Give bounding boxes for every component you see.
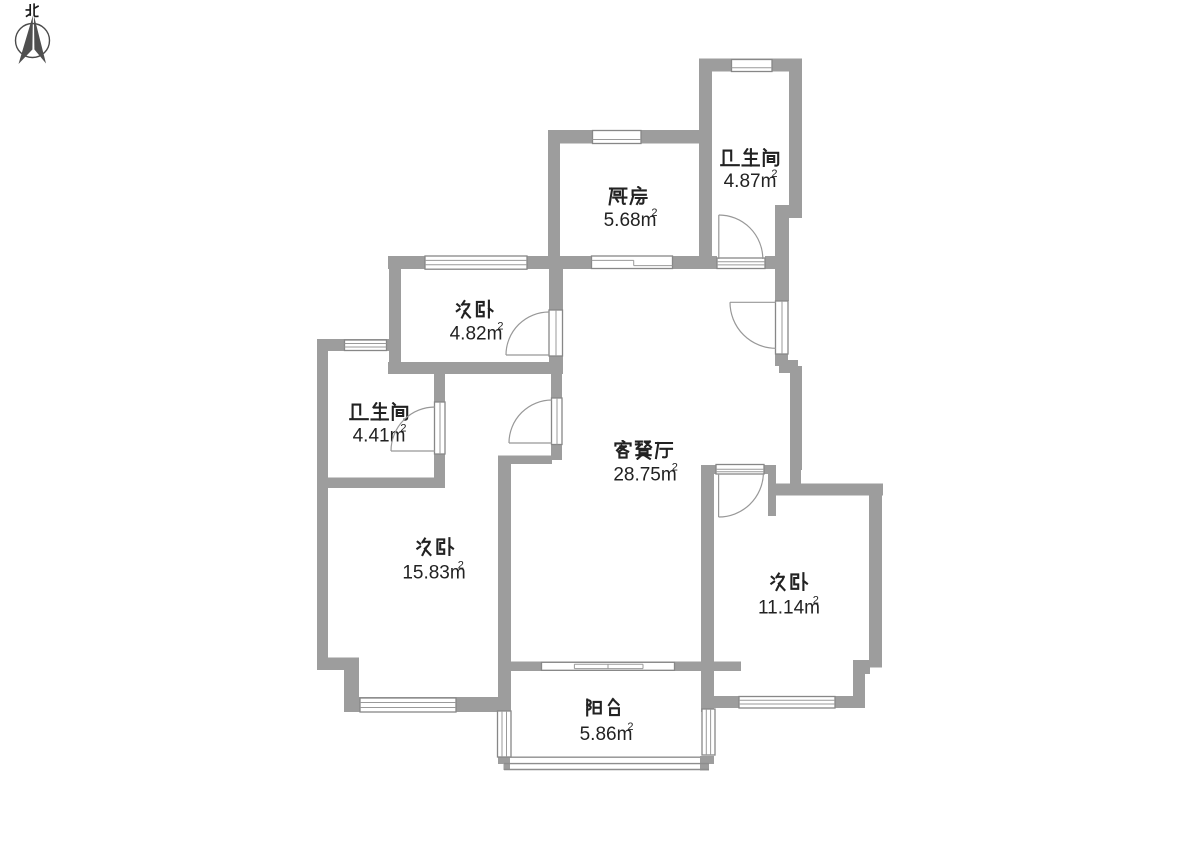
svg-text:2: 2 — [771, 168, 777, 180]
svg-text:11.14m: 11.14m — [758, 598, 820, 619]
svg-text:2: 2 — [651, 207, 657, 219]
svg-text:2: 2 — [813, 595, 819, 607]
svg-text:28.75m: 28.75m — [613, 465, 676, 486]
svg-text:2: 2 — [627, 721, 633, 733]
svg-text:2: 2 — [497, 321, 503, 333]
svg-text:4.82m: 4.82m — [450, 324, 503, 345]
svg-text:2: 2 — [400, 423, 406, 435]
svg-text:2: 2 — [458, 560, 464, 572]
svg-text:2: 2 — [672, 462, 678, 474]
svg-text:4.87m: 4.87m — [724, 171, 777, 192]
svg-text:5.86m: 5.86m — [580, 724, 633, 745]
svg-text:5.68m: 5.68m — [604, 210, 657, 231]
svg-text:15.83m: 15.83m — [402, 563, 465, 584]
